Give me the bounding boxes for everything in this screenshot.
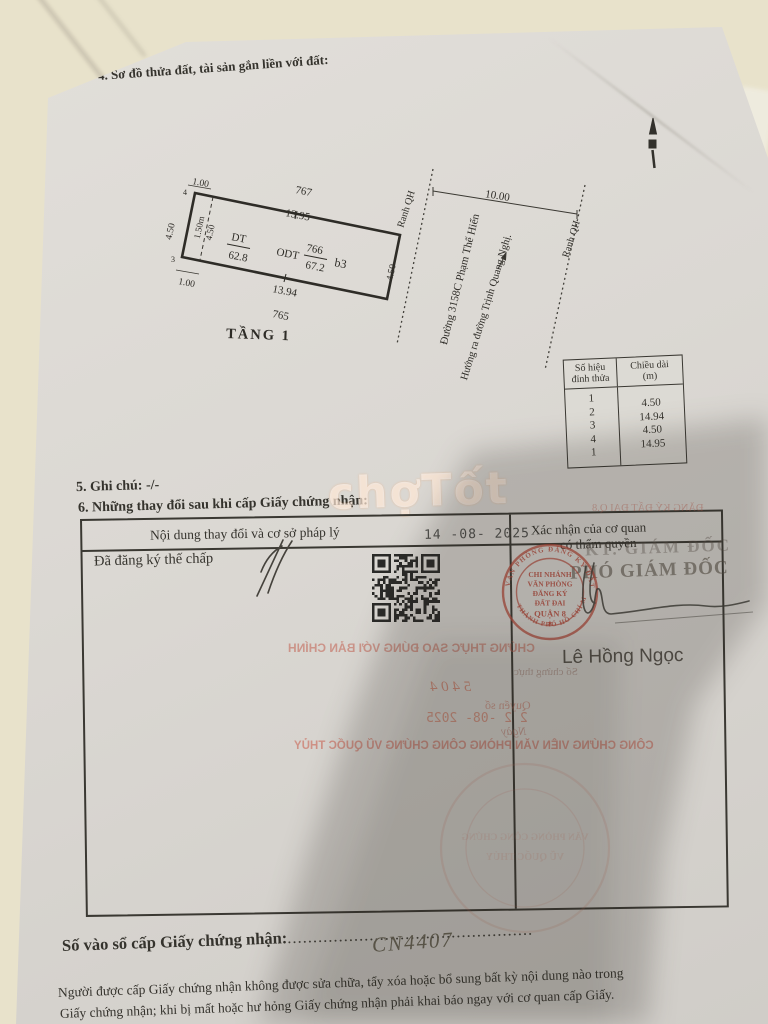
approver-signature — [583, 563, 749, 614]
notary-stamp-bleed: VĂN PHÒNG CÔNG CHỨNG VŨ QUỐC THỦY — [441, 764, 609, 932]
stamp-center-line1: CHI NHÁNH — [528, 569, 572, 579]
stamp-center-line4: ĐẤT ĐAI — [535, 598, 566, 608]
mortgage-check-mark — [257, 540, 292, 596]
svg-text:VĂN PHÒNG ĐĂNG KÝ ĐẤT ĐAI: VĂN PHÒNG ĐĂNG KÝ ĐẤT ĐAI — [0, 0, 597, 592]
stamp-center-line3: ĐĂNG KÝ — [533, 588, 568, 598]
photo-of-document: { "page": { "section4_title": "4. Sơ đồ … — [0, 0, 768, 1024]
pen-line — [615, 612, 753, 623]
notary-stamp-line1: VĂN PHÒNG CÔNG CHỨNG — [461, 830, 589, 843]
registry-dots-right: ............ — [471, 920, 533, 941]
notary-stamp-line2: VŨ QUỐC THỦY — [485, 850, 564, 863]
stamp-ring-bottom-text: THÀNH PHỐ HỒ CHÍ MINH — [0, 0, 588, 629]
certificate-page: 4. Sơ đồ thửa đất, tài sản gắn liền với … — [0, 0, 768, 1024]
stamp-center-line2: VĂN PHÒNG — [528, 579, 573, 589]
svg-text:THÀNH PHỐ HỒ CHÍ MINH: THÀNH PHỐ HỒ CHÍ MINH — [0, 0, 588, 629]
stamp-ring-top-text: VĂN PHÒNG ĐĂNG KÝ ĐẤT ĐAI — [0, 0, 597, 592]
marble-vein — [39, 0, 146, 57]
stamp-star: ★ — [547, 620, 553, 627]
stamp-center-line5: QUẬN 8 — [534, 609, 566, 619]
ink-overlay: VĂN PHÒNG ĐĂNG KÝ ĐẤT ĐAI THÀNH PHỐ HỒ C… — [0, 0, 768, 1024]
office-stamp: VĂN PHÒNG ĐĂNG KÝ ĐẤT ĐAI THÀNH PHỐ HỒ C… — [0, 0, 597, 639]
